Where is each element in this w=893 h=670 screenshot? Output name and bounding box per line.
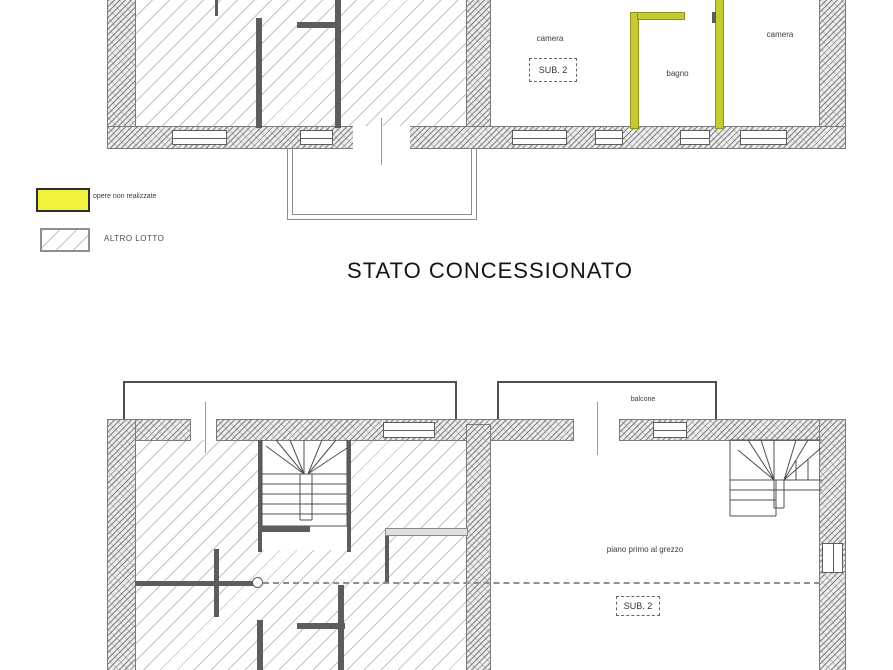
lot-boundary-dashed-line [263,582,820,584]
door-centerline [205,402,206,453]
window [822,543,843,573]
floor-plan-sheet: camera SUB. 2 bagno camera opere non rea… [0,0,893,670]
partition-wall [215,0,218,16]
room-label-camera-left: camera [515,33,585,45]
sub-2-badge-bottom: SUB. 2 [616,596,660,616]
column-marker [252,577,263,588]
window [595,130,623,145]
unrealized-wall [638,13,684,19]
door-centerline [381,118,382,165]
window [172,130,227,145]
page-title: STATO CONCESSIONATO [330,258,650,284]
altro-lotto-hatch-area [135,0,467,128]
door-centerline [597,402,598,455]
balcony-railing [123,381,457,420]
legend-swatch-yellow [36,188,90,212]
unrealized-wall [631,13,638,128]
door-hinge-mark [712,12,716,23]
partition-wall [385,528,468,536]
window [512,130,567,145]
staircase-left [260,440,349,528]
partition-wall [135,581,253,586]
partition-wall [338,585,344,670]
sub-2-badge-top: SUB. 2 [529,58,577,82]
staircase-right [728,438,824,520]
window [383,422,435,438]
partition-wall [385,536,389,584]
window [680,130,710,145]
window [300,130,333,145]
legend-label-unrealized: opere non realizzate [93,191,213,203]
partition-wall [257,620,263,670]
partition-wall [258,526,310,532]
balcony-railing-inner [292,148,472,215]
window [653,422,687,438]
partition-wall [256,18,262,128]
wall-segment [108,0,135,148]
unrealized-wall [716,0,723,128]
legend-label-altro-lotto: ALTRO LOTTO [104,233,214,245]
room-label-bagno: bagno [645,68,710,80]
partition-wall [297,22,341,28]
partition-wall [335,0,341,128]
area-label-piano-primo: piano primo al grezzo [555,544,735,556]
room-label-camera-right: camera [745,29,815,41]
wall-segment [467,425,490,670]
wall-segment [108,420,135,670]
balcony-label: balcone [598,394,688,406]
wall-segment [820,0,845,148]
partition-wall [214,549,219,617]
legend-swatch-hatched [40,228,90,252]
window [740,130,787,145]
wall-segment [467,0,490,130]
